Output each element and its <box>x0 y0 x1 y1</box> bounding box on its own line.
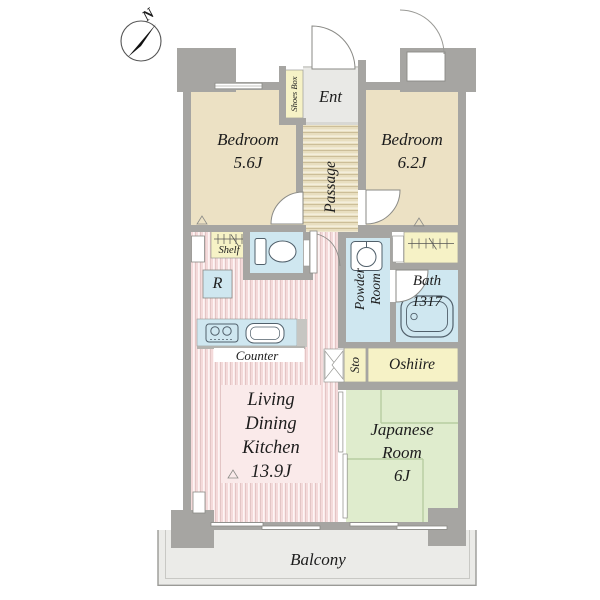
ldk-line2: Dining <box>221 412 321 436</box>
toilet-icon <box>255 239 296 265</box>
entrance-door-arc <box>312 26 355 69</box>
meter-box-door-arc <box>400 10 444 54</box>
wall-niche-shelf <box>192 236 205 262</box>
wall-toilet-left <box>243 232 250 280</box>
ldk-size: 13.9J <box>221 460 321 484</box>
wall-toilet-bottom <box>243 273 313 280</box>
bedroom-east-label: Bedroom 6.2J <box>362 128 462 174</box>
bedroom-north-name: Bedroom <box>188 128 308 151</box>
bath-label: Bath 1317 <box>398 271 456 313</box>
wall-niche-lower-left <box>193 492 205 513</box>
passage-label: Passage <box>321 132 339 242</box>
wall-entrance-right <box>358 60 366 125</box>
wall-top-bedroom-east <box>358 82 470 90</box>
wall-powder-left <box>338 232 346 348</box>
shoes-box-label: Shoes Box <box>288 69 300 119</box>
japanese-room-label: Japanese Room 6J <box>346 418 458 487</box>
closet-door <box>393 236 404 262</box>
north-needle-icon <box>128 24 156 57</box>
bath-name: Bath <box>398 271 456 292</box>
ldk-line1: Living <box>221 388 321 412</box>
floor-plan: N Bedroom 5.6J Bedroom 6.2J Ent Passage … <box>0 0 600 600</box>
powder-room-line1: Powder <box>352 268 369 310</box>
japanese-room-size: 6J <box>346 464 458 487</box>
compass <box>121 21 161 61</box>
window-ldk-pane <box>262 526 320 529</box>
wall-bath-left-lower <box>390 302 396 348</box>
powder-room-label: Powder Room <box>351 237 385 341</box>
window-ldk-pane <box>211 523 263 526</box>
window-japanese-pane <box>397 526 447 529</box>
japanese-room-line2: Room <box>346 441 458 464</box>
bedroom-north-label: Bedroom 5.6J <box>188 128 308 174</box>
bedroom-east-name: Bedroom <box>362 128 462 151</box>
wall-shoesbox-bottom <box>279 118 306 125</box>
ldk-line3: Kitchen <box>221 436 321 460</box>
wall-bedroom-north-bottom <box>183 225 306 232</box>
balcony-label: Balcony <box>198 548 438 571</box>
floor-plan-drawing <box>0 0 600 600</box>
compass-circle <box>121 21 161 61</box>
ldk-label: Living Dining Kitchen 13.9J <box>221 388 321 484</box>
sink-icon <box>246 324 284 344</box>
meter-box-niche <box>407 52 445 81</box>
sto-folding-door <box>324 349 344 382</box>
oshiire-label: Oshiire <box>368 355 456 375</box>
bath-size: 1317 <box>398 292 456 313</box>
powder-room-line2: Room <box>368 273 385 305</box>
bedroom-north-size: 5.6J <box>188 151 308 174</box>
wall-bath-bottom <box>338 342 466 348</box>
window-bedroom-north <box>215 83 262 89</box>
wall-shoesbox-left <box>279 66 286 125</box>
refrigerator-label: R <box>203 274 232 294</box>
wall-closet-bottom <box>392 263 466 270</box>
window-japanese-pane <box>350 523 398 526</box>
toilet-door <box>304 240 310 266</box>
wall-bedroom-east-bottom <box>358 225 458 232</box>
pillar-bottom-left <box>171 510 214 548</box>
entrance-label: Ent <box>303 85 358 108</box>
shelf-label: Shelf <box>209 245 249 256</box>
sto-label: Sto <box>348 350 362 380</box>
wall-japanese-top <box>338 382 466 390</box>
counter-label: Counter <box>212 349 302 363</box>
bedroom-east-size: 6.2J <box>362 151 462 174</box>
japanese-room-line1: Japanese <box>346 418 458 441</box>
kitchen-end-panel <box>297 319 307 347</box>
entrance-step-edge <box>303 122 358 125</box>
